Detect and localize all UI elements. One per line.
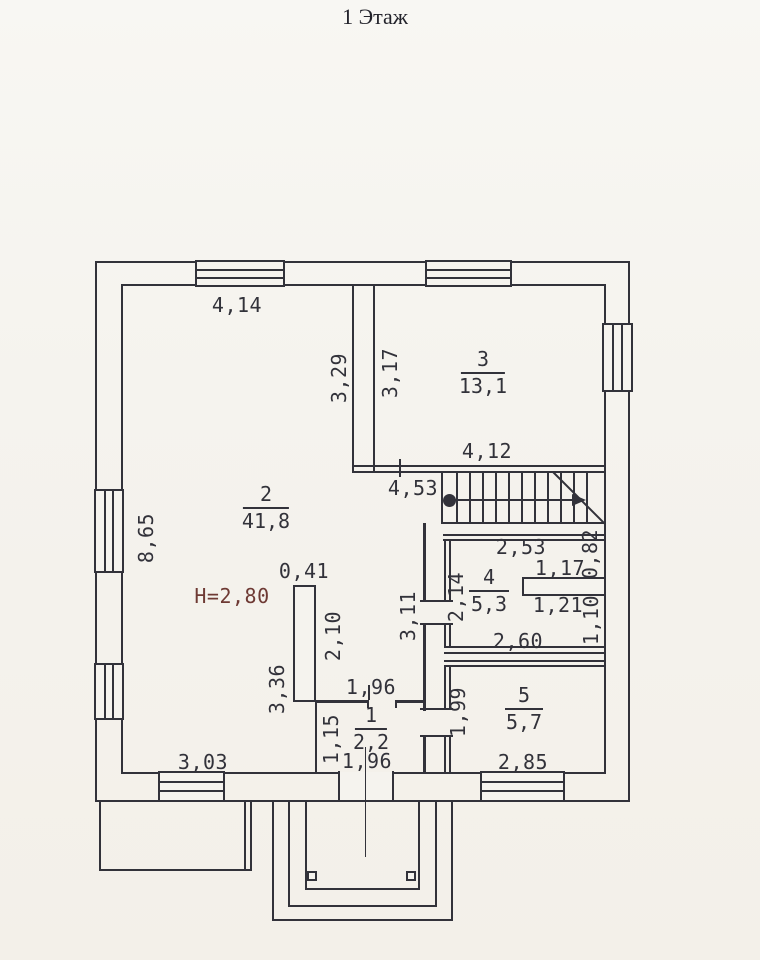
door-jamb: [338, 771, 340, 802]
stair-direction-line: [450, 499, 574, 501]
room4-area: 5,3: [471, 594, 507, 615]
dimension-tick: [399, 459, 401, 477]
room1-number: 1: [365, 705, 377, 726]
terrace-edge-line: [244, 800, 246, 871]
room5-number: 5: [518, 685, 530, 706]
room5-area: 5,7: [506, 712, 542, 733]
room5-top-wall-upper-line: [444, 660, 606, 662]
window-pane-line: [160, 781, 223, 783]
wall-room2-room3-left-line: [352, 285, 354, 473]
wall-room3-bottom-upper-line: [352, 465, 606, 467]
dim-room1-top: 1,96: [346, 675, 396, 699]
window-pane-line: [160, 790, 223, 792]
porch-platform: [305, 800, 420, 890]
dim-partition-thickness: 0,41: [279, 559, 329, 583]
window-pane-line: [104, 665, 106, 718]
room4-left-wall: [449, 625, 451, 646]
entrance-door-opening: [340, 772, 393, 801]
dim-room4-bottom: 2,60: [493, 629, 543, 653]
room4-number: 4: [483, 567, 495, 588]
room2-number: 2: [260, 484, 272, 505]
dim-room2-right-upper: 3,29: [327, 353, 351, 403]
room3-label: 3 13,1: [459, 349, 507, 397]
room1-top-wall: [315, 700, 368, 703]
window-pane-line: [612, 325, 614, 390]
window-bottom-left: [158, 771, 225, 802]
wall-room3-bottom-lower-line: [352, 471, 606, 473]
window-pane-line: [621, 325, 623, 390]
stair-tread: [547, 473, 549, 522]
stair-tread: [521, 473, 523, 522]
door-jamb: [395, 700, 397, 708]
window-pane-line: [427, 277, 510, 279]
window-pane-line: [482, 790, 563, 792]
stair-tread: [482, 473, 484, 522]
door-jamb: [420, 623, 453, 625]
stairs-direction-arrow-icon: [572, 494, 586, 506]
stair-tread: [456, 473, 458, 522]
dim-stair-hall: 4,53: [388, 476, 438, 500]
window-top-left: [195, 260, 285, 287]
corridor-wall: [423, 625, 426, 711]
window-left-upper: [94, 489, 124, 573]
room5-left-wall: [449, 737, 451, 773]
dim-room2-top: 4,14: [212, 293, 262, 317]
stair-tread: [508, 473, 510, 522]
dim-room2-bottom: 3,03: [178, 750, 228, 774]
dim-niche-bottom-height: 1,10: [579, 595, 603, 645]
room4-left-wall: [444, 625, 446, 646]
dim-room2-right-lower: 3,36: [265, 664, 289, 714]
window-pane-line: [112, 665, 114, 718]
dim-room3-left: 3,17: [378, 348, 402, 398]
dim-room5-bottom: 2,85: [498, 750, 548, 774]
room2-area: 41,8: [242, 511, 290, 532]
dim-partition-length: 2,10: [321, 611, 345, 661]
window-pane-line: [427, 269, 510, 271]
room1-left-wall: [315, 702, 317, 772]
room5-top-wall-lower-line: [444, 665, 606, 667]
window-pane-line: [197, 269, 283, 271]
window-right: [602, 323, 633, 392]
window-pane-line: [104, 491, 106, 571]
window-pane-line: [112, 491, 114, 571]
dim-niche-bottom-width: 1,21: [533, 593, 583, 617]
room5-label: 5 5,7: [505, 685, 543, 733]
window-left-lower: [94, 663, 124, 720]
dim-room1-left: 1,15: [319, 714, 343, 764]
partition-stub-wall: [293, 585, 316, 702]
room2-label: 2 41,8: [242, 484, 290, 532]
window-pane-line: [197, 277, 283, 279]
room1-top-wall: [396, 700, 424, 703]
stair-tread: [534, 473, 536, 522]
dim-room1-bottom: 1,96: [342, 749, 392, 773]
room5-left-wall: [444, 737, 446, 773]
stair-tread: [495, 473, 497, 522]
corridor-wall: [423, 523, 426, 601]
dim-niche-top-height: 0,82: [578, 529, 602, 579]
window-pane-line: [482, 781, 563, 783]
floor-plan: 1 Этаж: [0, 0, 760, 960]
dim-room4-left: 2,14: [444, 572, 468, 622]
porch-post: [406, 871, 416, 881]
window-top-right: [425, 260, 512, 287]
ceiling-height-note: Н=2,80: [194, 584, 269, 608]
porch-post: [307, 871, 317, 881]
dim-room3-bottom: 4,12: [462, 439, 512, 463]
corridor-wall: [423, 737, 426, 772]
room3-area: 13,1: [459, 376, 507, 397]
wall-room2-room3-right-line: [373, 285, 375, 473]
dim-room5-left: 1,99: [446, 687, 470, 737]
window-bottom-right: [480, 771, 565, 802]
room4-label: 4 5,3: [469, 567, 509, 615]
page-title: 1 Этаж: [342, 4, 408, 30]
stair-hall-bottom-wall: [441, 522, 606, 524]
room3-number: 3: [477, 349, 489, 370]
terrace-outline: [99, 800, 252, 871]
stair-tread: [586, 473, 588, 522]
door-jamb: [392, 771, 394, 802]
dim-hall-right: 3,11: [396, 591, 420, 641]
stair-tread: [469, 473, 471, 522]
room1-label: 1 2,2: [353, 705, 389, 753]
dim-room2-left: 8,65: [134, 513, 158, 563]
